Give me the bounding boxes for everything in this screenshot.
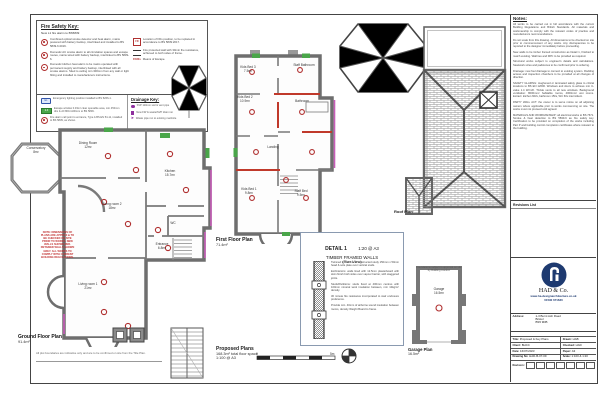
fire-key-title: Fire Safety Key: bbox=[41, 24, 79, 30]
boundary-line bbox=[36, 361, 162, 362]
revision-cell bbox=[576, 362, 584, 370]
proposed-plans-title: Proposed Plans 168.3m² total floor space… bbox=[216, 346, 258, 360]
room-label-staff-bathroom: Staff Bathroom bbox=[284, 64, 324, 68]
fire-key-right-items: FD Location of FDs position, to be repla… bbox=[133, 38, 203, 64]
revision-cell bbox=[536, 362, 544, 370]
room-label-conservatory: Conservatory8m² bbox=[14, 147, 58, 155]
fire-key-item: Domestic kitchen heat alarm to be mains … bbox=[41, 63, 129, 77]
room-label-garage: Garage16.5m² bbox=[420, 288, 458, 296]
notes-paragraph: New walls to be timber framed constructi… bbox=[513, 51, 594, 58]
room-label-wc: WC bbox=[166, 222, 180, 226]
bay-roof-detail-small bbox=[170, 64, 208, 120]
room-label-living2: Living room 218m² bbox=[88, 203, 136, 211]
detail-paragraphs: Twinned timber frame constructed study 1… bbox=[331, 261, 399, 314]
logo-section: HAD & Co. www.ha-designarchitecture.co.u… bbox=[511, 260, 596, 314]
room-label-kidsbed1: Kids Bed 19.8m² bbox=[232, 188, 266, 196]
fire-key-item: Combined optical smoke detector and heat… bbox=[41, 38, 129, 48]
fire-key-item: Fire protected wall with 30min fire resi… bbox=[133, 49, 203, 56]
revisions-box: Revisions List bbox=[511, 200, 596, 258]
wall-section-detail bbox=[311, 261, 327, 339]
room-label-bathroom: Bathroom bbox=[286, 100, 318, 104]
heat-detector-icon bbox=[41, 64, 48, 71]
revision-cell bbox=[586, 362, 594, 370]
ground-floor-plan-title: Ground Floor Plan 91.4m² bbox=[18, 334, 62, 344]
room-label-kidsbed3: Kids Bed 37.5m² bbox=[232, 66, 264, 74]
garage-plan-drawing bbox=[408, 260, 470, 352]
garage-plan-title: Garage Plan 16.5m² bbox=[408, 347, 432, 356]
fire-key-item-text: Emergency lighting position installed to… bbox=[53, 97, 112, 104]
notes-paragraph: Drainage: new foul drainage to connect t… bbox=[513, 70, 594, 80]
smoke-detector-icon bbox=[41, 52, 48, 59]
garage-note: Foundations subject to approval on site … bbox=[416, 266, 462, 272]
room-label-staffbed: Staff Bed9.5m² bbox=[284, 190, 318, 198]
bin-store-symbols bbox=[112, 327, 146, 345]
drawing-sheet-page: Fire Safety Key: New L1 fire alarm to BS… bbox=[0, 0, 600, 400]
fire-key-item-text: Means of Escape. bbox=[143, 58, 165, 61]
notes-paragraph: All works to be carried out in full acco… bbox=[513, 23, 594, 36]
room-label-living1: Living room 121m² bbox=[62, 283, 114, 291]
notes-title: Notes: bbox=[513, 16, 594, 21]
fire-key-item-text: Location of FDs position, to be replaced… bbox=[143, 38, 203, 46]
fire-key-item-text: Combined optical smoke detector and heat… bbox=[50, 38, 129, 48]
room-label-kitchen: Kitchen15.7m² bbox=[150, 170, 190, 178]
svp-icon bbox=[131, 105, 135, 109]
revision-row: Revision: bbox=[511, 361, 596, 371]
revision-cell bbox=[566, 362, 574, 370]
svg-text:0: 0 bbox=[256, 352, 258, 356]
title-block: HAD & Co. www.ha-designarchitecture.co.u… bbox=[511, 260, 596, 382]
fire-door-icon: FD bbox=[133, 38, 141, 46]
roof-plan-title: Roof Plan bbox=[394, 209, 413, 214]
ground-floor-red-note: NOTE: DIMENSIONS OF PLANS ARE APPROX & T… bbox=[40, 231, 75, 259]
address-value: 1-3 Burnt Ash Road Bristol BS5 9DB bbox=[534, 314, 562, 331]
survey-station-icon bbox=[340, 347, 358, 365]
revision-cell bbox=[556, 362, 564, 370]
fire-key-item: FD30s Means of Escape. bbox=[133, 58, 203, 61]
drainage-item-text: SVP 110mm soil & vent pipe bbox=[137, 104, 170, 108]
notes-paragraph: PARTY WALL ACT: the owner is to serve no… bbox=[513, 101, 594, 111]
roof-plan-drawing bbox=[404, 22, 510, 216]
fire-key-item: EL Emergency lighting position installed… bbox=[41, 97, 123, 104]
detail-heading: DETAIL 1 1:20 @ A3 bbox=[301, 237, 403, 255]
notes-column: Notes: All works to be carried out in fu… bbox=[513, 16, 594, 133]
company-phone: 01590 671630 bbox=[511, 298, 596, 302]
external-stairs-drawing bbox=[168, 326, 208, 380]
svg-text:5m: 5m bbox=[330, 352, 335, 356]
notes-paragraph: MATERIALS AND WORKMANSHIP: all electrica… bbox=[513, 114, 594, 130]
detail-1-box: DETAIL 1 1:20 @ A3 TIMBER FRAMED WALLS (… bbox=[300, 232, 404, 346]
room-label-entrance: Entrance6.8m² bbox=[144, 243, 180, 251]
revisions-title: Revisions List bbox=[511, 201, 596, 209]
first-floor-plan-title: First Floor Plan 71.4m² bbox=[216, 237, 253, 247]
revision-cell bbox=[546, 362, 554, 370]
fire-key-subtitle: New L1 fire alarm to BS5839 bbox=[41, 31, 79, 35]
address-label: Address: bbox=[513, 315, 525, 318]
room-label-kidsbed2: Kids Bed 210.9m² bbox=[228, 96, 262, 104]
fire-key-item: Domestic AC smoke alarm to all circulati… bbox=[41, 51, 129, 61]
address-row: Address: 1-3 Burnt Ash Road Bristol BS5 … bbox=[511, 314, 596, 332]
fire-key-left-items: Combined optical smoke detector and heat… bbox=[41, 38, 129, 80]
revision-cell bbox=[526, 362, 534, 370]
boundary-note: All plot boundaries are indicative only … bbox=[36, 352, 158, 355]
notes-paragraph: SAFETY GLAZING: toughened or laminated s… bbox=[513, 82, 594, 98]
fire-key-item-text: Domestic kitchen heat alarm to be mains … bbox=[50, 63, 129, 77]
notes-paragraph: Structural works subject to engineer's d… bbox=[513, 60, 594, 67]
emergency-light-icon: EL bbox=[41, 98, 51, 105]
revision-label: Revision: bbox=[513, 364, 525, 367]
scale-bar: 0 5m bbox=[256, 352, 340, 364]
room-label-landing: Landing bbox=[258, 146, 288, 150]
had-co-logo-icon bbox=[541, 262, 567, 288]
room-label-dining: Dining Room12m² bbox=[66, 142, 110, 150]
notes-paragraph: Do not scale from this drawing. All dime… bbox=[513, 39, 594, 49]
fire-key-item: FD Location of FDs position, to be repla… bbox=[133, 38, 203, 46]
smoke-detector-icon bbox=[41, 39, 48, 46]
fire-wall-icon bbox=[133, 50, 141, 56]
fire-key-item-text: Domestic AC smoke alarm to all circulati… bbox=[50, 51, 129, 61]
fire-key-item-text: Fire protected wall with 30min fire resi… bbox=[143, 49, 203, 56]
fd30s-label: FD30s bbox=[133, 58, 141, 61]
